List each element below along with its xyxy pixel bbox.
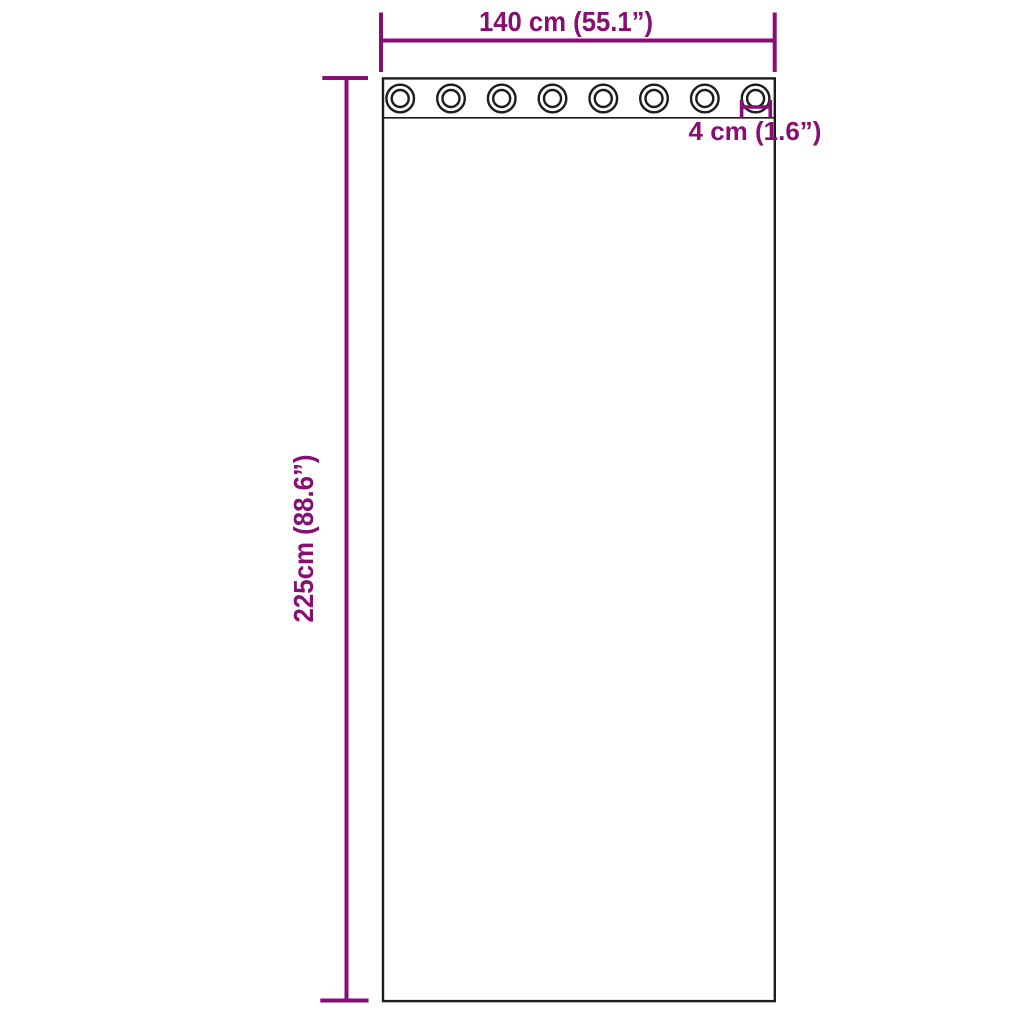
- svg-text:225cm (88.6”): 225cm (88.6”): [288, 455, 319, 623]
- svg-text:4 cm (1.6”): 4 cm (1.6”): [689, 116, 822, 146]
- svg-text:140 cm (55.1”): 140 cm (55.1”): [479, 6, 653, 37]
